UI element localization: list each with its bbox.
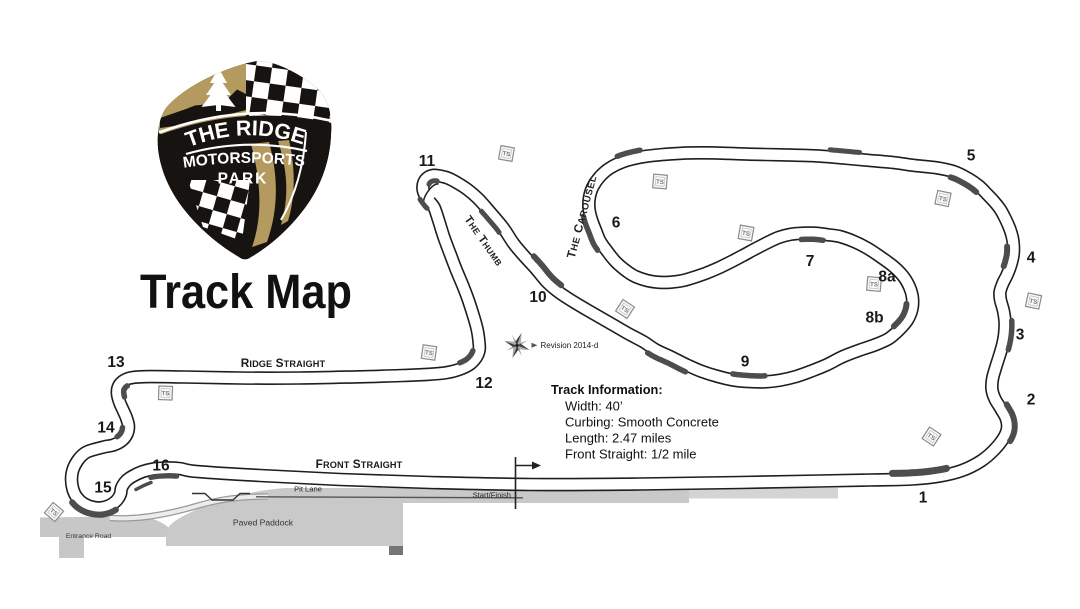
svg-text:15: 15 [94,480,112,497]
svg-text:TS: TS [502,150,511,158]
svg-text:12: 12 [475,375,492,392]
svg-text:TS: TS [656,178,665,186]
svg-text:Paved Paddock: Paved Paddock [233,518,294,528]
svg-text:13: 13 [107,354,125,371]
svg-text:7: 7 [806,253,815,270]
svg-text:Front Straight: 1/2 mile: Front Straight: 1/2 mile [565,447,697,462]
svg-text:Revision 2014-d: Revision 2014-d [541,341,599,350]
svg-text:9: 9 [741,354,750,371]
svg-text:6: 6 [612,215,621,232]
svg-text:Pit Lane: Pit Lane [294,485,322,494]
svg-text:PARK: PARK [218,171,269,188]
svg-text:4: 4 [1027,250,1036,267]
svg-text:TS: TS [161,390,169,397]
svg-text:RIDGE STRAIGHT: RIDGE STRAIGHT [241,356,326,370]
svg-text:8b: 8b [865,310,883,327]
svg-text:Length: 2.47 miles: Length: 2.47 miles [565,431,672,446]
svg-text:5: 5 [967,148,976,165]
svg-text:Entrance Road: Entrance Road [66,533,112,540]
svg-text:Width: 40’: Width: 40’ [565,399,623,414]
svg-text:Track Information:: Track Information: [551,382,663,397]
svg-text:16: 16 [152,458,170,475]
svg-text:Start/Finish: Start/Finish [473,491,511,500]
svg-text:10: 10 [529,289,546,306]
svg-text:TS: TS [741,230,750,238]
svg-text:8a: 8a [878,269,896,286]
svg-text:11: 11 [419,153,436,170]
svg-text:14: 14 [97,420,115,437]
svg-text:3: 3 [1016,327,1025,344]
svg-text:Track Map: Track Map [140,266,352,319]
svg-text:2: 2 [1027,392,1036,409]
svg-text:FRONT STRAIGHT: FRONT STRAIGHT [316,457,403,471]
svg-text:TS: TS [424,349,433,357]
svg-text:TS: TS [870,281,879,289]
svg-text:Curbing: Smooth Concrete: Curbing: Smooth Concrete [565,415,719,430]
svg-text:1: 1 [919,490,928,507]
